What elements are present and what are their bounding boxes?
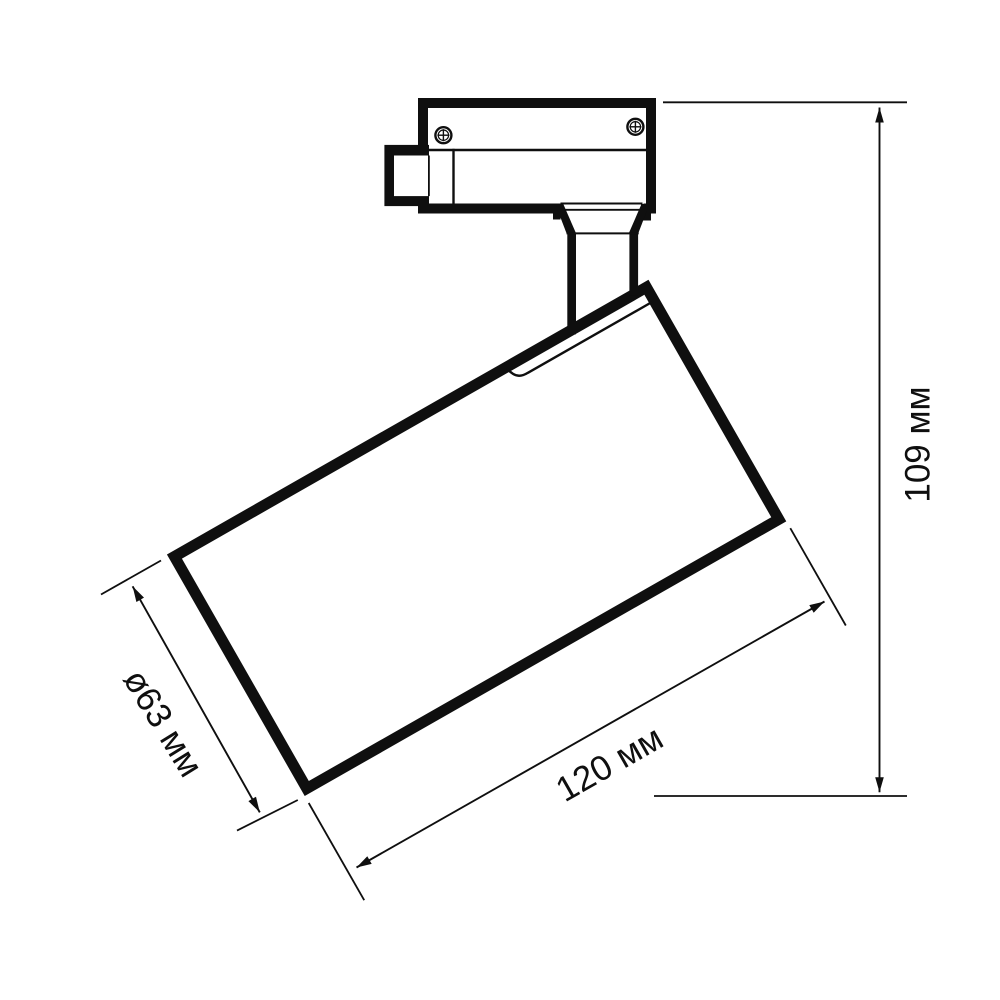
svg-text:109 мм: 109 мм — [899, 386, 938, 502]
